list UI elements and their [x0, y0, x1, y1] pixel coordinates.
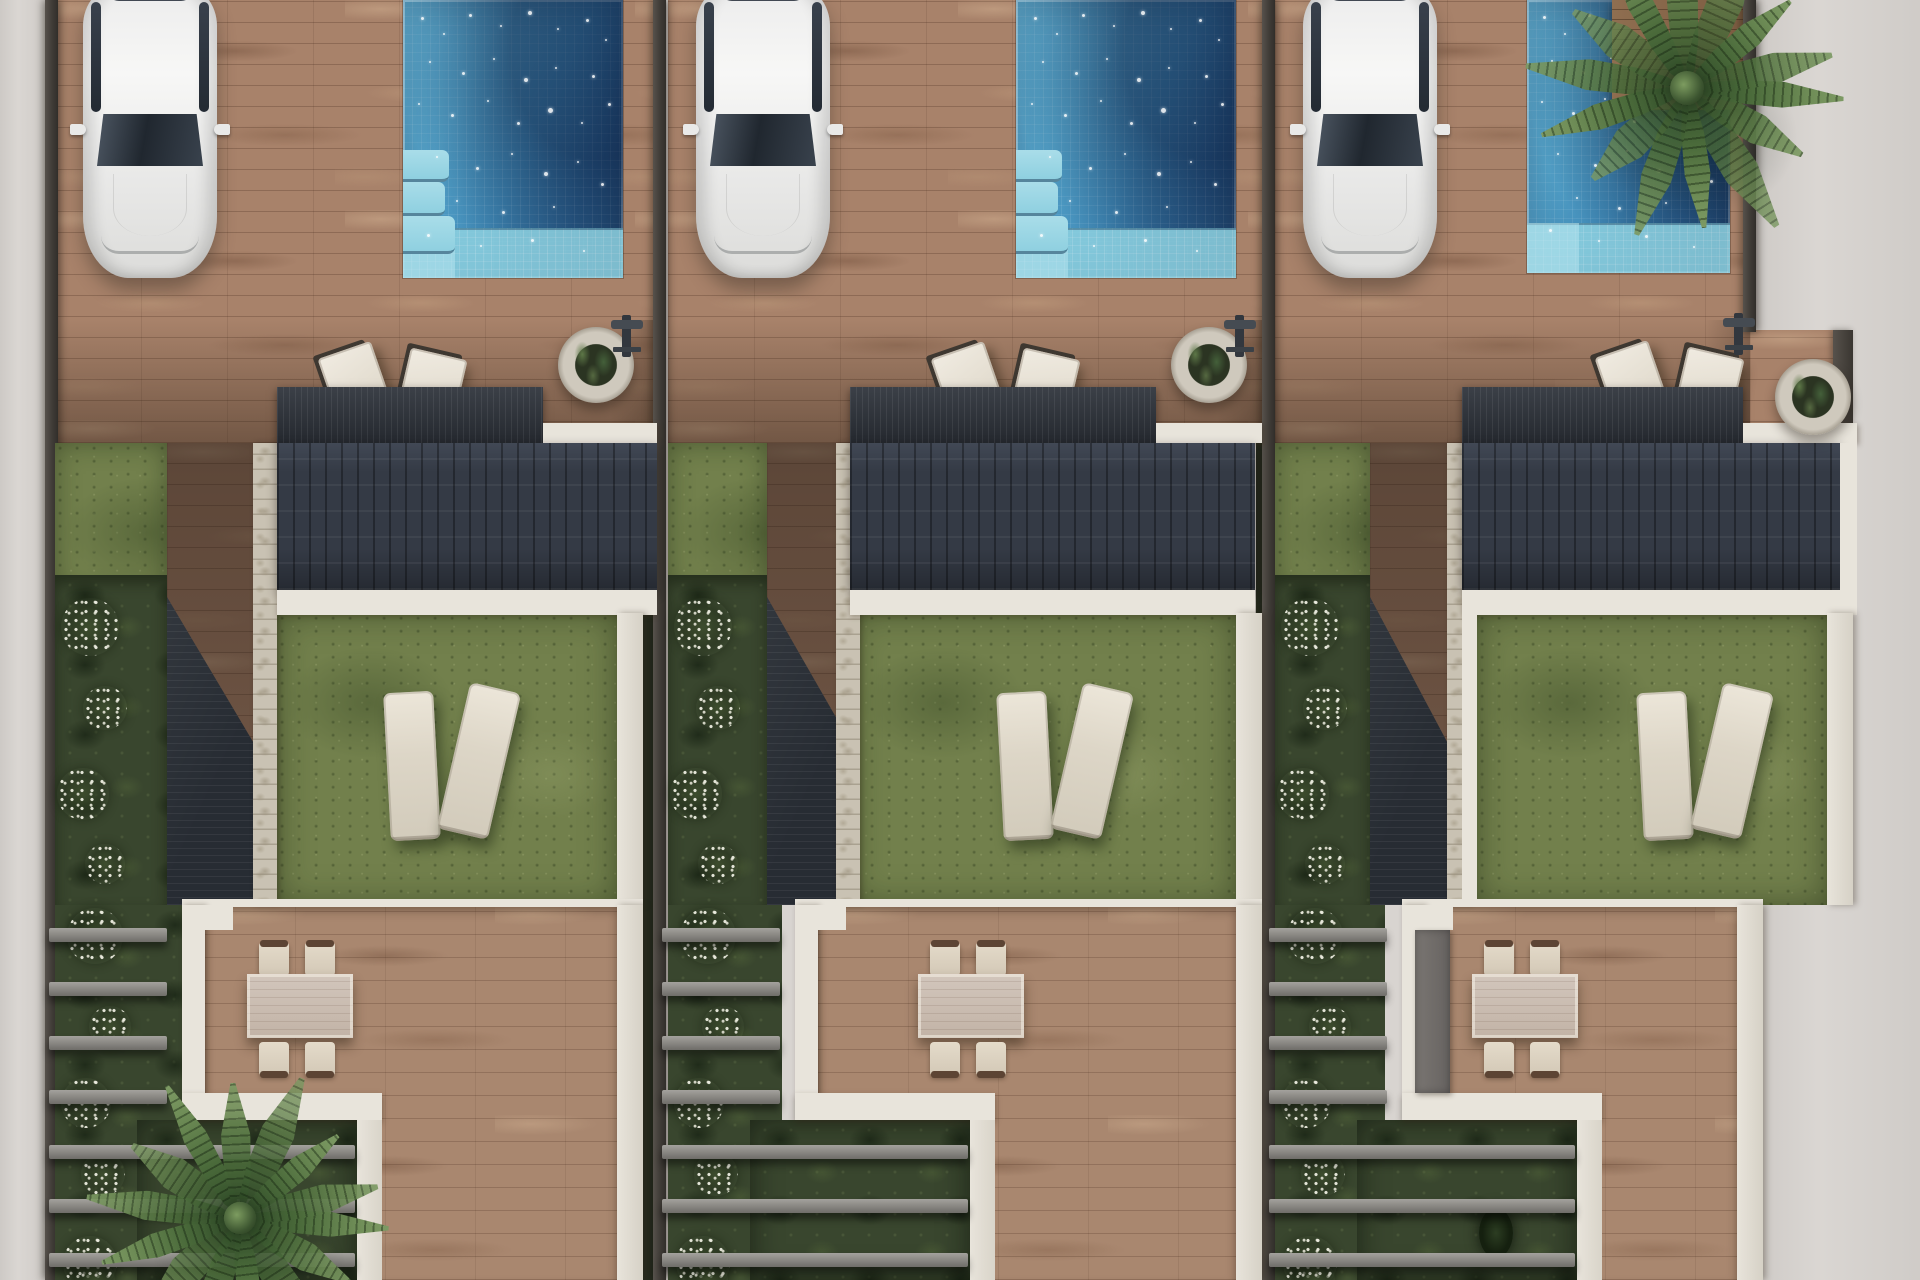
small-tree	[1479, 1208, 1513, 1258]
terrace-edge-wall	[1402, 899, 1763, 907]
outdoor-shower	[1224, 315, 1256, 359]
water-sparkle	[1205, 75, 1208, 78]
car-front-bumper	[101, 236, 199, 254]
water-sparkle	[1075, 72, 1078, 75]
car-hood	[726, 174, 800, 236]
dining-set	[247, 942, 353, 1078]
water-sparkle	[462, 72, 465, 75]
pergola-roof	[277, 387, 543, 443]
car-windshield	[97, 114, 203, 166]
water-sparkle	[480, 245, 482, 247]
water-sparkle	[1113, 25, 1115, 27]
terrace-wall	[970, 1120, 995, 1280]
sun-lounger	[383, 691, 441, 841]
car-mirror	[683, 124, 699, 135]
water-sparkle	[1106, 58, 1108, 60]
parapet-wall	[1156, 423, 1262, 443]
lower-courtyard	[750, 1120, 970, 1280]
car-mirror	[1434, 124, 1450, 135]
water-sparkle	[500, 25, 502, 27]
dining-chair	[305, 942, 335, 976]
terrace-wall	[1402, 905, 1453, 930]
side-planting-bed	[55, 575, 167, 905]
water-sparkle	[1199, 19, 1202, 22]
car-front-bumper	[1321, 236, 1419, 254]
dining-chair	[1484, 1042, 1514, 1076]
water-sparkle	[605, 39, 607, 41]
tiled-roof	[277, 443, 657, 590]
water-sparkle	[1115, 211, 1118, 214]
water-sparkle	[429, 61, 431, 63]
villa-3	[1275, 0, 1857, 1280]
terrace-wall	[182, 905, 205, 1095]
water-sparkle	[1543, 16, 1546, 19]
water-sparkle	[601, 183, 604, 186]
dining-set	[1472, 942, 1578, 1078]
terrace-wall	[795, 905, 846, 930]
car-hood	[1333, 174, 1407, 236]
water-sparkle	[1089, 167, 1092, 170]
parapet-wall	[543, 423, 657, 443]
water-sparkle	[1221, 103, 1224, 106]
car-side-window	[1311, 2, 1321, 112]
water-sparkle	[1170, 28, 1172, 30]
car-side-window	[704, 2, 714, 112]
stone-wall	[253, 443, 277, 905]
outdoor-shower	[1723, 313, 1755, 357]
pergola-roof	[1462, 387, 1743, 443]
car-front-bumper	[714, 236, 812, 254]
dining-chair	[259, 1042, 289, 1076]
car-side-window	[812, 2, 822, 112]
water-sparkle	[1034, 17, 1037, 20]
terrace-side-wall	[1737, 905, 1763, 1280]
water-sparkle	[469, 14, 472, 17]
water-sparkle	[502, 211, 505, 214]
water-sparkle	[1214, 183, 1217, 186]
tiled-roof	[1462, 443, 1840, 590]
car-side-window	[91, 2, 101, 112]
water-sparkle	[427, 234, 430, 237]
water-sparkle	[1042, 61, 1044, 63]
water-sparkle	[1093, 245, 1095, 247]
lawn-side-wall	[617, 613, 643, 905]
water-sparkle	[487, 100, 489, 102]
water-sparkle	[555, 67, 557, 69]
car-hood	[113, 174, 187, 236]
roof-parapet	[850, 590, 1255, 615]
water-sparkle	[1541, 101, 1543, 103]
car-windshield	[710, 114, 816, 166]
sidewalk-left	[0, 0, 45, 1280]
water-sparkle	[1194, 122, 1196, 124]
water-sparkle	[511, 153, 513, 155]
side-grass-strip	[1275, 443, 1370, 593]
terrace-wall	[1577, 1120, 1602, 1280]
water-sparkle	[528, 11, 532, 15]
water-sparkle	[443, 33, 445, 35]
water-sparkle	[1069, 200, 1071, 202]
water-sparkle	[1137, 78, 1141, 82]
car-mirror	[70, 124, 86, 135]
sun-lounger	[996, 691, 1054, 841]
swimming-pool	[1016, 0, 1236, 278]
water-sparkle	[1218, 39, 1220, 41]
terrace-edge-wall	[795, 899, 1262, 907]
water-sparkle	[517, 122, 520, 125]
palm-crown	[224, 1202, 256, 1234]
water-reflections	[403, 0, 623, 278]
dining-chair	[930, 1042, 960, 1076]
dining-chair	[976, 1042, 1006, 1076]
water-sparkle	[1031, 103, 1033, 105]
dining-table	[1472, 974, 1578, 1038]
dining-set	[918, 942, 1024, 1078]
utility-box	[1415, 930, 1450, 1093]
dining-chair	[259, 942, 289, 976]
side-planting-bed	[668, 575, 767, 905]
party-wall-2	[1262, 0, 1275, 1280]
water-sparkle	[1040, 234, 1043, 237]
car-rear-window	[720, 0, 806, 1]
lawn-side-wall	[1827, 613, 1853, 905]
car-rear-window	[1327, 0, 1413, 1]
water-sparkle	[583, 250, 585, 252]
water-sparkle	[1082, 14, 1085, 17]
aerial-render-three-villas	[0, 0, 1920, 1280]
lawn-side-wall	[1462, 613, 1477, 905]
water-sparkle	[531, 239, 534, 242]
car-mirror	[214, 124, 230, 135]
water-sparkle	[451, 114, 454, 117]
water-sparkle	[553, 206, 555, 208]
white-car	[1303, 0, 1437, 278]
water-sparkle	[524, 78, 528, 82]
water-sparkle	[592, 75, 595, 78]
dining-chair	[930, 942, 960, 976]
car-rear-window	[107, 0, 193, 1]
water-reflections	[1016, 0, 1236, 278]
water-sparkle	[421, 17, 424, 20]
dining-chair	[1530, 1042, 1560, 1076]
roof-side-parapet	[1840, 443, 1857, 615]
water-sparkle	[581, 122, 583, 124]
terrace-wall	[1402, 1093, 1602, 1120]
water-sparkle	[1049, 156, 1051, 158]
sun-lounger	[1636, 691, 1694, 841]
pergola-roof	[850, 387, 1156, 443]
water-sparkle	[544, 172, 548, 176]
swimming-pool	[403, 0, 623, 278]
lower-courtyard	[1357, 1120, 1577, 1280]
water-sparkle	[493, 58, 495, 60]
white-car	[83, 0, 217, 278]
water-sparkle	[1166, 206, 1168, 208]
water-sparkle	[1124, 153, 1126, 155]
car-mirror	[827, 124, 843, 135]
water-sparkle	[1100, 100, 1102, 102]
water-sparkle	[577, 161, 579, 163]
tiled-roof	[850, 443, 1255, 590]
side-grass-strip	[668, 443, 767, 593]
car-side-window	[1419, 2, 1429, 112]
side-planting-bed	[1275, 575, 1370, 905]
side-grass-strip	[55, 443, 167, 593]
dining-table	[247, 974, 353, 1038]
water-sparkle	[557, 28, 559, 30]
roof-parapet	[1462, 590, 1840, 615]
car-mirror	[1290, 124, 1306, 135]
villa-2	[668, 0, 1262, 1280]
water-sparkle	[456, 200, 458, 202]
water-sparkle	[1056, 33, 1058, 35]
water-sparkle	[548, 108, 553, 113]
dining-chair	[1484, 942, 1514, 976]
water-sparkle	[476, 167, 479, 170]
water-sparkle	[608, 103, 611, 106]
terrace-edge-wall	[182, 899, 643, 907]
round-planter	[1775, 359, 1851, 435]
palm-crown	[1670, 71, 1704, 105]
dining-chair	[305, 1042, 335, 1076]
water-sparkle	[1190, 161, 1192, 163]
water-sparkle	[1549, 229, 1552, 232]
water-sparkle	[1130, 122, 1133, 125]
water-sparkle	[586, 19, 589, 22]
car-side-window	[199, 2, 209, 112]
party-wall-1	[653, 0, 666, 1280]
lawn-side-wall	[1236, 613, 1262, 905]
terrace-side-wall	[617, 905, 643, 1280]
terrace-side-wall	[1236, 905, 1262, 1280]
roof-parapet	[277, 590, 657, 615]
terrace-wall	[182, 905, 233, 930]
dining-chair	[976, 942, 1006, 976]
dining-table	[918, 974, 1024, 1038]
terrace-wall	[795, 905, 818, 1095]
water-sparkle	[436, 156, 438, 158]
water-sparkle	[1161, 108, 1166, 113]
car-windshield	[1317, 114, 1423, 166]
dining-chair	[1530, 942, 1560, 976]
water-sparkle	[1141, 11, 1145, 15]
water-sparkle	[418, 103, 420, 105]
water-sparkle	[1168, 67, 1170, 69]
garden-lawn	[277, 613, 617, 905]
outdoor-shower	[611, 315, 643, 359]
terrace-wall	[795, 1093, 995, 1120]
water-sparkle	[1157, 172, 1161, 176]
water-sparkle	[1064, 114, 1067, 117]
villa-1	[55, 0, 655, 1280]
water-sparkle	[1196, 250, 1198, 252]
water-sparkle	[1144, 239, 1147, 242]
white-car	[696, 0, 830, 278]
